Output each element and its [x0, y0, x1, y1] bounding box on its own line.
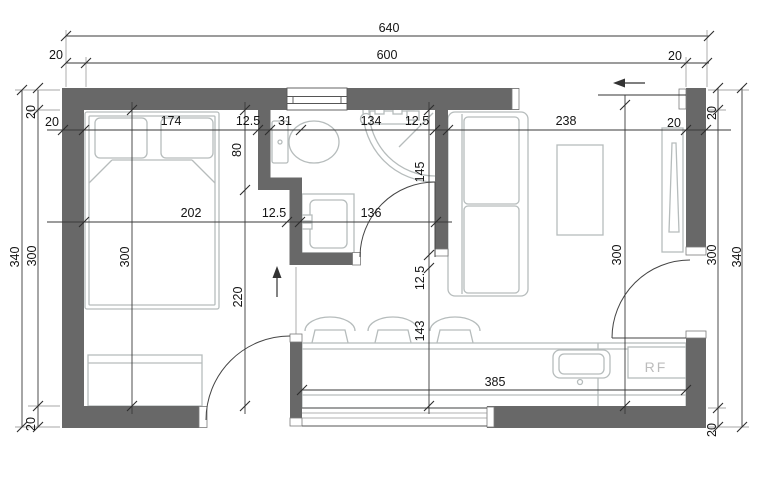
dim-top-total: 640	[379, 22, 400, 35]
dim-row1-wall-left: 20	[45, 116, 59, 129]
window-bottom	[302, 408, 487, 426]
dim-top-inner: 600	[377, 49, 398, 62]
dim-row1-living: 238	[556, 115, 577, 128]
dim-top-wall-left: 20	[49, 49, 63, 62]
dim-row2-bath-lower: 136	[361, 207, 382, 220]
door-bedroom	[206, 336, 290, 420]
wall-bath-jog	[258, 178, 302, 191]
pillow	[95, 118, 147, 158]
dim-right-inner: 300	[706, 245, 719, 266]
wall-bottom-bedroom	[84, 406, 199, 428]
dim-col-bath: 145	[414, 162, 427, 183]
dim-right-wall-top: 20	[706, 106, 719, 120]
wall-top-a	[84, 88, 287, 110]
coffee-table	[557, 145, 603, 235]
floor-plan-drawing	[0, 0, 768, 479]
dim-row1-bath: 134	[361, 115, 382, 128]
furniture-layer	[85, 108, 686, 408]
dim-row2-bedroom: 202	[181, 207, 202, 220]
wall-kitchen-stub	[290, 342, 302, 418]
dim-row2-partition: 12.5	[262, 207, 286, 220]
wall-left	[62, 88, 84, 428]
dim-col-living: 300	[611, 245, 624, 266]
dim-col-partition-upper: 80	[231, 143, 244, 157]
dim-counter-length: 385	[485, 376, 506, 389]
sofa	[448, 112, 528, 296]
entry-arrow-up-icon	[273, 266, 282, 297]
dim-left-wall-top: 20	[25, 105, 38, 119]
wardrobe	[88, 355, 202, 406]
wall-bottom-right	[487, 406, 706, 428]
entry-arrow-left-icon	[613, 79, 645, 88]
wall-bath-east	[435, 110, 448, 249]
refrigerator-label: RF	[645, 359, 668, 375]
wall-bath-south	[290, 253, 353, 266]
dim-row1-bed: 174	[161, 115, 182, 128]
dim-left-wall-bottom: 20	[25, 417, 38, 431]
dim-left-total: 340	[9, 247, 22, 268]
dim-col-bedroom-lower: 220	[232, 287, 245, 308]
dim-right-total: 340	[731, 247, 744, 268]
dim-right-wall-bottom: 20	[706, 423, 719, 437]
dim-col-entry: 143	[414, 321, 427, 342]
tv-console	[662, 128, 683, 252]
bathroom-sink	[302, 194, 354, 253]
wall-right-upper	[686, 88, 706, 255]
door-entry	[612, 260, 690, 338]
dim-col-bedroom: 300	[119, 247, 132, 268]
window-top	[287, 88, 347, 110]
dim-top-wall-right: 20	[668, 50, 682, 63]
dim-row1-recess: 31	[278, 115, 292, 128]
dim-left-inner: 300	[26, 246, 39, 267]
floor-plan: 640 20 600 20 20 174 12.5 31 134 12.5 23…	[0, 0, 768, 479]
dim-row1-bath-wall: 12.5	[405, 115, 429, 128]
dim-col-bath-wall: 12.5	[414, 266, 427, 290]
dim-row1-wall-right: 20	[667, 117, 681, 130]
dim-row1-partition: 12.5	[236, 115, 260, 128]
